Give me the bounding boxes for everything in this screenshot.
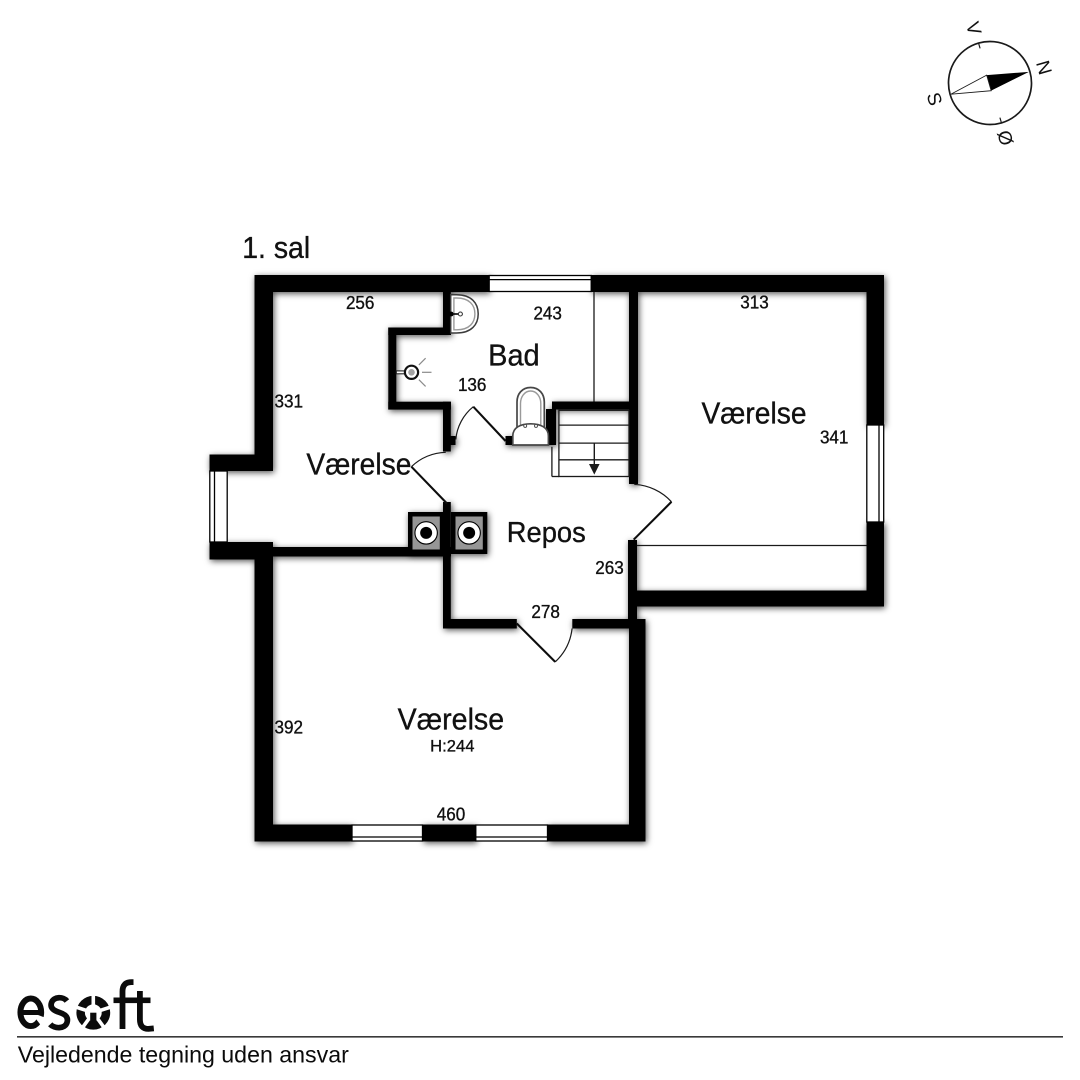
- svg-text:256: 256: [346, 293, 375, 313]
- svg-text:Værelse: Værelse: [398, 702, 505, 737]
- svg-text:Værelse: Værelse: [702, 396, 807, 431]
- svg-text:Repos: Repos: [507, 517, 586, 549]
- svg-text:Vejledende tegning uden ansvar: Vejledende tegning uden ansvar: [18, 1042, 349, 1068]
- svg-text:313: 313: [740, 293, 769, 313]
- svg-text:136: 136: [458, 375, 487, 395]
- svg-text:341: 341: [820, 428, 849, 448]
- svg-text:392: 392: [275, 718, 304, 738]
- svg-text:460: 460: [437, 805, 466, 825]
- svg-text:Bad: Bad: [488, 338, 540, 373]
- svg-text:278: 278: [531, 602, 560, 622]
- svg-text:Værelse: Værelse: [306, 446, 411, 481]
- svg-text:H:244: H:244: [430, 737, 474, 756]
- svg-text:263: 263: [595, 558, 624, 578]
- svg-text:243: 243: [533, 303, 562, 323]
- svg-text:331: 331: [275, 392, 304, 412]
- svg-text:1. sal: 1. sal: [242, 230, 310, 265]
